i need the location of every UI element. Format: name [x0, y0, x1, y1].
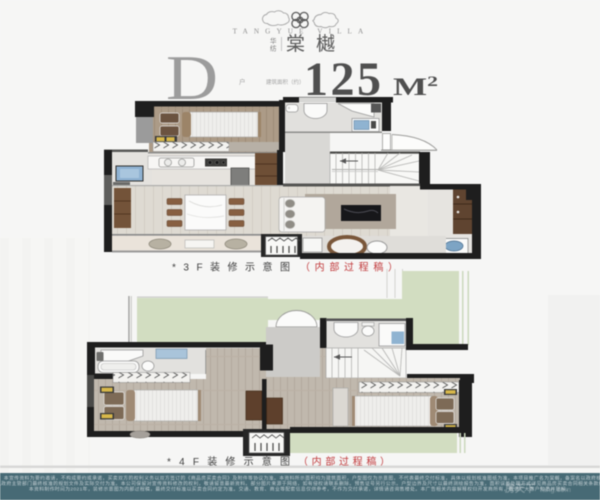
svg-text:棠樾: 棠樾	[286, 33, 346, 55]
svg-text:fang.com: fang.com	[540, 485, 571, 494]
svg-text:华: 华	[270, 36, 277, 45]
svg-text:户: 户	[239, 77, 246, 86]
svg-text:纺: 纺	[270, 44, 277, 53]
svg-text:本资料制作时间为2021年，装修示意图为内部过程稿，最终交付: 本资料制作时间为2021年，装修示意图为内部过程稿，最终交付标准以买卖合同约定为…	[29, 486, 571, 493]
svg-text:建筑面积（约）: 建筑面积（约）	[266, 78, 305, 86]
svg-text:房天下: 房天下	[505, 482, 535, 495]
svg-text:（内部过程稿）: （内部过程稿）	[300, 261, 398, 274]
svg-text:免责声明：本宣传资料为要约邀请，不构成要约或承诺，买卖双方的: 免责声明：本宣传资料为要约邀请，不构成要约或承诺，买卖双方的权利义务以双方签订的…	[0, 475, 600, 482]
